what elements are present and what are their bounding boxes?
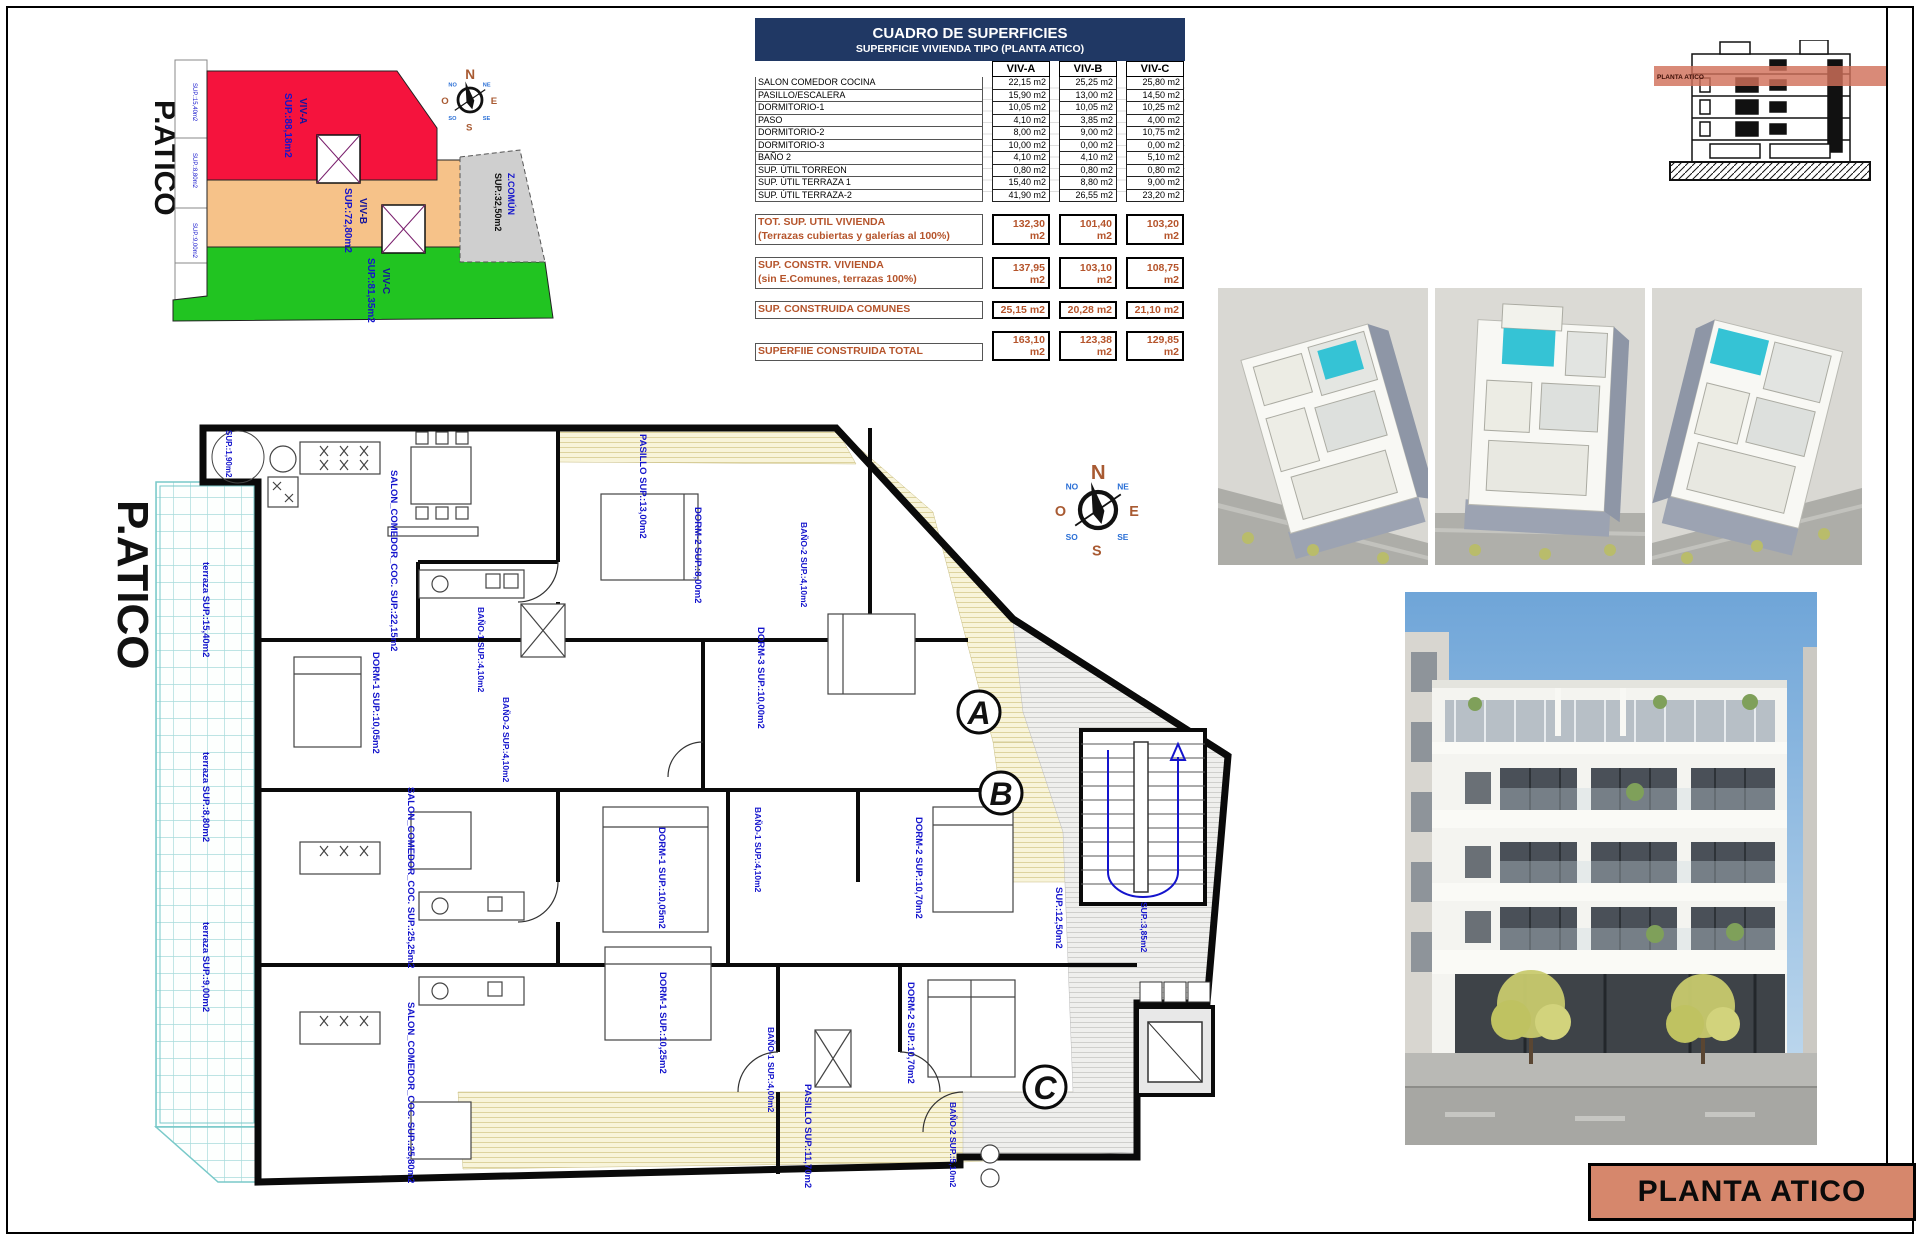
viv-c-area: SUP.:81,35m2 bbox=[365, 258, 376, 323]
building-section-drawing: PLANTA ATICO bbox=[1650, 40, 1890, 190]
cell-a: 8,00 m2 bbox=[992, 127, 1050, 140]
summary-b: 101,40 m2 bbox=[1059, 214, 1117, 245]
room-label: SALON_COMEDOR_COC. SUP.:25,25m2 bbox=[405, 787, 416, 968]
row-label: DORMITORIO-2 bbox=[755, 127, 983, 140]
compass-ne: NE bbox=[483, 82, 491, 88]
cell-b: 26,55 m2 bbox=[1059, 190, 1117, 203]
compass-se: SE bbox=[483, 116, 491, 122]
elevator bbox=[1137, 982, 1213, 1095]
table-row: SUP. ÚTIL TORREON0,80 m20,80 m20,80 m2 bbox=[755, 165, 1185, 178]
room-label: SUP.:3,85m2 bbox=[1139, 902, 1149, 953]
compass-n: N bbox=[1091, 462, 1106, 484]
title-block: PLANTA ATICO bbox=[1588, 1163, 1916, 1221]
compass-ne: NE bbox=[1117, 482, 1129, 492]
room-label: SUP.:12,50m2 bbox=[1053, 887, 1064, 949]
floor-plan: P.ATICO bbox=[88, 412, 1278, 1202]
cell-b: 9,00 m2 bbox=[1059, 127, 1117, 140]
summary-c: 103,20 m2 bbox=[1126, 214, 1184, 245]
cell-b: 8,80 m2 bbox=[1059, 177, 1117, 190]
room-label: PASILLO SUP.:11,70m2 bbox=[802, 1084, 813, 1188]
cell-a: 10,05 m2 bbox=[992, 102, 1050, 115]
table-row: PASILLO/ESCALERA15,90 m213,00 m214,50 m2 bbox=[755, 90, 1185, 103]
room-label: DORM-1 SUP.:10,25m2 bbox=[657, 972, 668, 1074]
summary-label-line1: TOT. SUP. UTIL VIVIENDA bbox=[758, 216, 885, 228]
table-column-header-row: VIV-A VIV-B VIV-C bbox=[755, 61, 1185, 77]
cell-a: 0,80 m2 bbox=[992, 165, 1050, 178]
street bbox=[1405, 1053, 1817, 1145]
summary-c: 21,10 m2 bbox=[1126, 301, 1184, 319]
cell-b: 4,10 m2 bbox=[1059, 152, 1117, 165]
summary-a: 25,15 m2 bbox=[992, 301, 1050, 319]
compass-o: O bbox=[1055, 504, 1066, 520]
col-viv-b: VIV-B bbox=[1059, 61, 1117, 77]
table-row: SUP. ÚTIL TERRAZA 115,40 m28,80 m29,00 m… bbox=[755, 177, 1185, 190]
table-row: DORMITORIO-28,00 m29,00 m210,75 m2 bbox=[755, 127, 1185, 140]
summary-a: 132,30 m2 bbox=[992, 214, 1050, 245]
room-label: BAÑO-1 SUP.:4,00m2 bbox=[766, 1027, 776, 1113]
room-label: BAÑO-2 SUP.:4,10m2 bbox=[799, 522, 809, 608]
room-label: DORM-2 SUP.:10,70m2 bbox=[905, 982, 916, 1084]
room-label: BAÑO-2 SUP.:4,10m2 bbox=[501, 697, 511, 783]
row-label: SUP. ÚTIL TERRAZA-2 bbox=[755, 190, 983, 203]
plan-title: P.ATICO bbox=[108, 500, 157, 670]
summary-a: 163,10 m2 bbox=[992, 331, 1050, 361]
edge-label: SUP.:8,80m2 bbox=[191, 153, 197, 189]
table-row: SUP. ÚTIL TERRAZA-241,90 m226,55 m223,20… bbox=[755, 190, 1185, 203]
row-label: SUP. ÚTIL TERRAZA 1 bbox=[755, 177, 983, 190]
table-body: SALON COMEDOR COCINA22,15 m225,25 m225,8… bbox=[755, 77, 1185, 202]
col-viv-a: VIV-A bbox=[992, 61, 1050, 77]
cell-c: 5,10 m2 bbox=[1126, 152, 1184, 165]
summary-label-line1: SUP. CONSTRUIDA COMUNES bbox=[758, 303, 910, 315]
compass-main: N S E O NE NO SE SO bbox=[1055, 462, 1139, 560]
summary-b: 20,28 m2 bbox=[1059, 301, 1117, 319]
row-label: PASILLO/ESCALERA bbox=[755, 90, 983, 103]
cell-c: 4,00 m2 bbox=[1126, 115, 1184, 128]
title-block-label: PLANTA ATICO bbox=[1638, 1175, 1867, 1209]
cell-a: 41,90 m2 bbox=[992, 190, 1050, 203]
site-key-plan: P.ATICO SUP.:15,40m2 SUP.:8,80m2 SUP.:9,… bbox=[125, 38, 575, 338]
table-subtitle: SUPERFICIE VIVIENDA TIPO (PLANTA ATICO) bbox=[755, 43, 1185, 61]
cell-c: 10,25 m2 bbox=[1126, 102, 1184, 115]
drawing-sheet: P.ATICO SUP.:15,40m2 SUP.:8,80m2 SUP.:9,… bbox=[0, 0, 1920, 1240]
cell-a: 10,00 m2 bbox=[992, 140, 1050, 153]
compass-so: SO bbox=[448, 116, 457, 122]
unit-mark-a: A bbox=[966, 695, 990, 731]
summary-label-line2: (sin E.Comunes, terrazas 100%) bbox=[758, 273, 917, 285]
room-label: SUP.:1,90m2 bbox=[224, 430, 233, 478]
table-row: SALON COMEDOR COCINA22,15 m225,25 m225,8… bbox=[755, 77, 1185, 90]
compass-so: SO bbox=[1066, 532, 1079, 542]
facade-building bbox=[1432, 680, 1787, 1053]
viv-a-area: SUP.:88,18m2 bbox=[282, 93, 293, 158]
compass-o: O bbox=[441, 96, 449, 107]
viv-c-name: VIV-C bbox=[380, 268, 391, 294]
room-label: terraza SUP.:9,00m2 bbox=[200, 922, 211, 1012]
unit-mark-c: C bbox=[1033, 1070, 1057, 1106]
summary-c: 108,75 m2 bbox=[1126, 257, 1184, 288]
table-title: CUADRO DE SUPERFICIES bbox=[755, 18, 1185, 43]
compass-s: S bbox=[466, 122, 473, 133]
summary-label-line1: SUPERFIIE CONSTRUIDA TOTAL bbox=[758, 345, 923, 357]
aerial-renders bbox=[1218, 288, 1862, 565]
room-label: terraza SUP.:8,80m2 bbox=[200, 752, 211, 842]
room-label: DORM-2 SUP.:8,00m2 bbox=[692, 507, 703, 603]
stair-core bbox=[1081, 730, 1205, 904]
unit-mark-b: B bbox=[989, 776, 1012, 812]
room-label: DORM-1 SUP.:10,05m2 bbox=[370, 652, 381, 754]
room-label: terraza SUP.:15,40m2 bbox=[200, 562, 211, 657]
compass-no: NO bbox=[448, 82, 457, 88]
room-label: BAÑO-2 SUP.:5,10m2 bbox=[948, 1102, 958, 1188]
summary-label: SUP. CONSTR. VIVIENDA(sin E.Comunes, ter… bbox=[755, 257, 983, 288]
cell-a: 4,10 m2 bbox=[992, 115, 1050, 128]
areas-table: CUADRO DE SUPERFICIES SUPERFICIE VIVIEND… bbox=[755, 18, 1185, 361]
row-label: DORMITORIO-1 bbox=[755, 102, 983, 115]
summary-b: 123,38 m2 bbox=[1059, 331, 1117, 361]
comun-name: Z.COMÚN bbox=[506, 173, 517, 215]
cell-b: 0,80 m2 bbox=[1059, 165, 1117, 178]
torreon-circle bbox=[212, 431, 264, 483]
summary-row-constr: SUP. CONSTR. VIVIENDA(sin E.Comunes, ter… bbox=[755, 257, 1185, 288]
cell-b: 25,25 m2 bbox=[1059, 77, 1117, 90]
viv-a-name: VIV-A bbox=[297, 98, 308, 124]
comun-area: SUP.:32,50m2 bbox=[493, 173, 503, 231]
compass-e: E bbox=[1129, 504, 1139, 520]
cell-b: 10,05 m2 bbox=[1059, 102, 1117, 115]
aerial-render-3 bbox=[1652, 288, 1862, 565]
compass-se: SE bbox=[1117, 532, 1129, 542]
summary-b: 103,10 m2 bbox=[1059, 257, 1117, 288]
table-row: DORMITORIO-110,05 m210,05 m210,25 m2 bbox=[755, 102, 1185, 115]
room-label: BAÑO-1 SUP.:4,10m2 bbox=[476, 607, 486, 693]
room-label: BAÑO-1 SUP.:4,10m2 bbox=[753, 807, 763, 893]
summary-label-line1: SUP. CONSTR. VIVIENDA bbox=[758, 259, 884, 271]
row-label: DORMITORIO-3 bbox=[755, 140, 983, 153]
facade-render bbox=[1405, 592, 1817, 1145]
compass-s: S bbox=[1092, 544, 1102, 560]
edge-label: SUP.:15,40m2 bbox=[191, 83, 197, 122]
viv-b-area: SUP.:72,80m2 bbox=[342, 188, 353, 253]
cell-a: 22,15 m2 bbox=[992, 77, 1050, 90]
balcony-bands bbox=[1432, 768, 1787, 968]
cell-c: 25,80 m2 bbox=[1126, 77, 1184, 90]
summary-row-total: SUPERFIIE CONSTRUIDA TOTAL 163,10 m2 123… bbox=[755, 331, 1185, 361]
cell-a: 15,90 m2 bbox=[992, 90, 1050, 103]
cell-c: 0,80 m2 bbox=[1126, 165, 1184, 178]
compass-e: E bbox=[491, 96, 498, 107]
compass-small: N S E O NE NO SE SO bbox=[441, 67, 498, 133]
row-label: SUP. ÚTIL TORREON bbox=[755, 165, 983, 178]
cell-c: 10,75 m2 bbox=[1126, 127, 1184, 140]
summary-c: 129,85 m2 bbox=[1126, 331, 1184, 361]
room-label: SALON_COMEDOR_COC. SUP.:25,80m2 bbox=[405, 1002, 416, 1183]
row-label: PASO bbox=[755, 115, 983, 128]
table-row: BAÑO 24,10 m24,10 m25,10 m2 bbox=[755, 152, 1185, 165]
cell-c: 14,50 m2 bbox=[1126, 90, 1184, 103]
summary-label: TOT. SUP. UTIL VIVIENDA(Terrazas cubiert… bbox=[755, 214, 983, 245]
room-label: PASILLO SUP.:13,00m2 bbox=[637, 434, 648, 539]
compass-n: N bbox=[465, 67, 475, 82]
row-label: BAÑO 2 bbox=[755, 152, 983, 165]
room-label: DORM-1 SUP.:10,05m2 bbox=[656, 827, 667, 929]
site-plan-dim-strip bbox=[175, 60, 207, 320]
compass-no: NO bbox=[1066, 482, 1079, 492]
cell-c: 23,20 m2 bbox=[1126, 190, 1184, 203]
col-viv-c: VIV-C bbox=[1126, 61, 1184, 77]
cell-b: 3,85 m2 bbox=[1059, 115, 1117, 128]
table-row: DORMITORIO-310,00 m20,00 m20,00 m2 bbox=[755, 140, 1185, 153]
cell-c: 9,00 m2 bbox=[1126, 177, 1184, 190]
row-label: SALON COMEDOR COCINA bbox=[755, 77, 983, 90]
site-plan-edge-labels: SUP.:15,40m2 SUP.:8,80m2 SUP.:9,00m2 bbox=[191, 83, 197, 259]
cell-a: 4,10 m2 bbox=[992, 152, 1050, 165]
aerial-render-2 bbox=[1435, 288, 1645, 565]
furniture bbox=[268, 432, 1015, 1187]
summary-a: 137,95 m2 bbox=[992, 257, 1050, 288]
summary-row-total-util: TOT. SUP. UTIL VIVIENDA(Terrazas cubiert… bbox=[755, 214, 1185, 245]
section-band-label: PLANTA ATICO bbox=[1657, 74, 1704, 81]
room-label: DORM-3 SUP.:10,00m2 bbox=[755, 627, 766, 729]
viv-b-name: VIV-B bbox=[357, 198, 368, 224]
cell-b: 0,00 m2 bbox=[1059, 140, 1117, 153]
table-row: PASO4,10 m23,85 m24,00 m2 bbox=[755, 115, 1185, 128]
cell-b: 13,00 m2 bbox=[1059, 90, 1117, 103]
summary-label-line2: (Terrazas cubiertas y galerías al 100%) bbox=[758, 230, 950, 242]
cell-c: 0,00 m2 bbox=[1126, 140, 1184, 153]
edge-label: SUP.:9,00m2 bbox=[191, 223, 197, 259]
cell-a: 15,40 m2 bbox=[992, 177, 1050, 190]
summary-row-comunes: SUP. CONSTRUIDA COMUNES 25,15 m2 20,28 m… bbox=[755, 301, 1185, 319]
summary-label: SUPERFIIE CONSTRUIDA TOTAL bbox=[755, 343, 983, 361]
summary-label: SUP. CONSTRUIDA COMUNES bbox=[755, 301, 983, 319]
room-label: SALON_COMEDOR_COC. SUP.:22,15m2 bbox=[388, 470, 399, 651]
room-label: DORM-2 SUP.:10,70m2 bbox=[913, 817, 924, 919]
